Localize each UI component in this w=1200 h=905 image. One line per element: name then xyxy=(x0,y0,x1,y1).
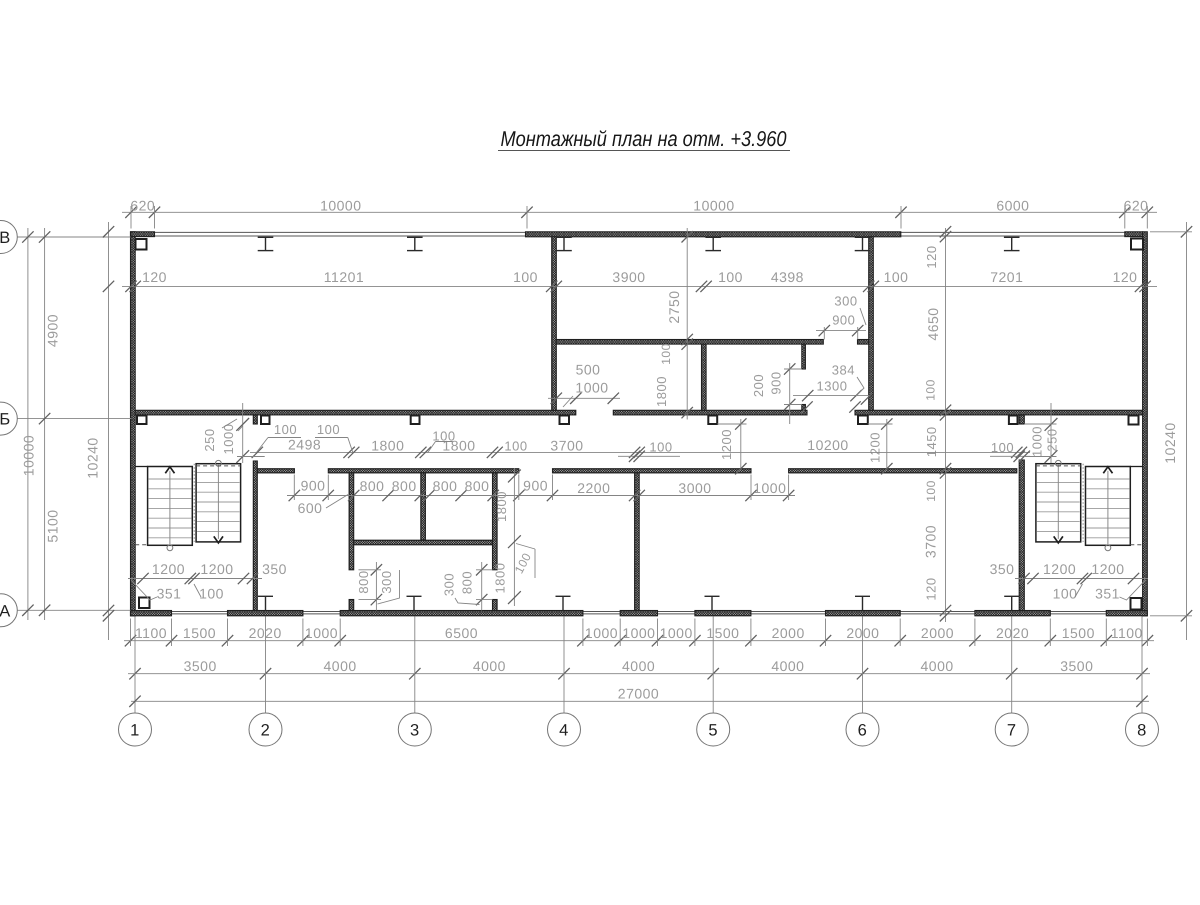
svg-text:100: 100 xyxy=(317,422,340,437)
svg-text:10000: 10000 xyxy=(320,197,361,213)
svg-text:3000: 3000 xyxy=(678,480,711,496)
svg-text:384: 384 xyxy=(832,363,855,378)
svg-text:2020: 2020 xyxy=(996,625,1029,641)
svg-text:1200: 1200 xyxy=(868,432,883,463)
svg-text:100: 100 xyxy=(199,586,224,602)
svg-text:4000: 4000 xyxy=(771,658,804,674)
svg-text:100: 100 xyxy=(718,269,743,285)
svg-text:1000: 1000 xyxy=(575,380,608,396)
svg-text:1000: 1000 xyxy=(1030,426,1045,457)
svg-text:800: 800 xyxy=(465,478,490,494)
svg-text:250: 250 xyxy=(1045,428,1060,451)
svg-text:900: 900 xyxy=(832,313,855,328)
svg-text:1800: 1800 xyxy=(493,563,508,594)
svg-text:5100: 5100 xyxy=(45,509,61,542)
svg-text:5: 5 xyxy=(708,721,718,739)
svg-text:10240: 10240 xyxy=(84,437,100,478)
svg-text:Б: Б xyxy=(0,411,11,429)
svg-text:100: 100 xyxy=(884,269,909,285)
svg-text:4: 4 xyxy=(559,721,569,739)
svg-text:1200: 1200 xyxy=(200,561,233,577)
svg-text:1000: 1000 xyxy=(305,625,338,641)
svg-text:4000: 4000 xyxy=(324,658,357,674)
svg-text:600: 600 xyxy=(298,500,323,516)
svg-text:100: 100 xyxy=(659,343,673,365)
svg-text:800: 800 xyxy=(433,478,458,494)
svg-text:900: 900 xyxy=(769,371,784,394)
svg-text:27000: 27000 xyxy=(618,686,659,702)
svg-text:1000: 1000 xyxy=(660,625,693,641)
svg-text:800: 800 xyxy=(356,570,371,593)
svg-text:100: 100 xyxy=(924,379,938,401)
svg-text:120: 120 xyxy=(924,245,939,268)
svg-text:3500: 3500 xyxy=(1060,658,1093,674)
svg-text:900: 900 xyxy=(523,478,548,494)
svg-text:100: 100 xyxy=(513,269,538,285)
svg-text:300: 300 xyxy=(379,570,394,593)
svg-text:3700: 3700 xyxy=(550,438,583,454)
svg-text:4650: 4650 xyxy=(925,307,941,340)
svg-text:2750: 2750 xyxy=(666,290,682,323)
svg-text:4000: 4000 xyxy=(921,658,954,674)
svg-text:7: 7 xyxy=(1007,721,1017,739)
svg-text:351: 351 xyxy=(157,585,182,601)
svg-text:4398: 4398 xyxy=(771,269,804,285)
svg-text:2000: 2000 xyxy=(921,625,954,641)
svg-text:350: 350 xyxy=(262,561,287,577)
svg-text:1200: 1200 xyxy=(1043,561,1076,577)
svg-text:2000: 2000 xyxy=(772,625,805,641)
svg-text:1800: 1800 xyxy=(494,491,509,522)
svg-text:8: 8 xyxy=(1137,721,1147,739)
svg-text:800: 800 xyxy=(392,478,417,494)
svg-text:620: 620 xyxy=(130,197,155,213)
svg-text:4000: 4000 xyxy=(473,658,506,674)
svg-text:10000: 10000 xyxy=(21,435,37,476)
svg-text:100: 100 xyxy=(991,440,1014,455)
svg-text:100: 100 xyxy=(274,422,297,437)
svg-text:4000: 4000 xyxy=(622,658,655,674)
svg-text:620: 620 xyxy=(1124,197,1149,213)
svg-text:10000: 10000 xyxy=(693,197,734,213)
svg-text:1000: 1000 xyxy=(753,480,786,496)
svg-text:100: 100 xyxy=(649,440,672,455)
svg-text:4900: 4900 xyxy=(45,314,61,347)
svg-text:2498: 2498 xyxy=(288,437,321,453)
svg-text:3: 3 xyxy=(410,721,420,739)
svg-text:3700: 3700 xyxy=(923,525,939,558)
svg-text:6500: 6500 xyxy=(445,625,478,641)
svg-text:250: 250 xyxy=(202,428,217,451)
svg-text:11201: 11201 xyxy=(324,269,364,285)
svg-text:А: А xyxy=(0,602,11,620)
svg-text:10200: 10200 xyxy=(807,437,848,453)
svg-text:1: 1 xyxy=(130,721,140,739)
svg-text:1000: 1000 xyxy=(622,625,655,641)
svg-text:1000: 1000 xyxy=(221,424,236,455)
svg-text:1800: 1800 xyxy=(654,376,669,407)
svg-text:6: 6 xyxy=(858,721,868,739)
svg-text:3500: 3500 xyxy=(184,658,217,674)
svg-text:1200: 1200 xyxy=(152,561,185,577)
svg-text:Монтажный план на отм. +3.960: Монтажный план на отм. +3.960 xyxy=(501,127,787,151)
svg-text:В: В xyxy=(0,229,11,247)
svg-text:1100: 1100 xyxy=(135,625,167,641)
svg-text:2200: 2200 xyxy=(577,480,610,496)
svg-text:300: 300 xyxy=(834,294,857,309)
svg-text:900: 900 xyxy=(301,478,326,494)
svg-text:100: 100 xyxy=(504,439,527,454)
svg-text:800: 800 xyxy=(360,478,385,494)
svg-text:350: 350 xyxy=(990,561,1015,577)
svg-text:1100: 1100 xyxy=(1111,625,1143,641)
svg-text:2: 2 xyxy=(261,721,271,739)
svg-text:500: 500 xyxy=(576,362,601,378)
svg-text:10240: 10240 xyxy=(1162,422,1178,463)
svg-text:1800: 1800 xyxy=(371,438,404,454)
svg-text:1000: 1000 xyxy=(585,625,618,641)
svg-text:1500: 1500 xyxy=(183,625,216,641)
svg-text:120: 120 xyxy=(1113,269,1138,285)
svg-text:200: 200 xyxy=(751,374,766,397)
svg-text:1500: 1500 xyxy=(706,625,739,641)
svg-text:1200: 1200 xyxy=(1091,561,1124,577)
svg-text:7201: 7201 xyxy=(990,269,1023,285)
svg-text:300: 300 xyxy=(442,573,457,596)
svg-text:100: 100 xyxy=(924,480,938,502)
svg-text:1500: 1500 xyxy=(1062,625,1095,641)
svg-text:120: 120 xyxy=(142,269,167,285)
svg-text:3900: 3900 xyxy=(612,269,645,285)
svg-text:6000: 6000 xyxy=(996,197,1029,213)
svg-text:1200: 1200 xyxy=(719,429,734,460)
svg-text:351: 351 xyxy=(1095,585,1120,601)
svg-text:800: 800 xyxy=(460,571,475,594)
svg-text:100: 100 xyxy=(1053,586,1078,602)
svg-text:1300: 1300 xyxy=(817,379,848,394)
svg-text:120: 120 xyxy=(924,577,939,600)
